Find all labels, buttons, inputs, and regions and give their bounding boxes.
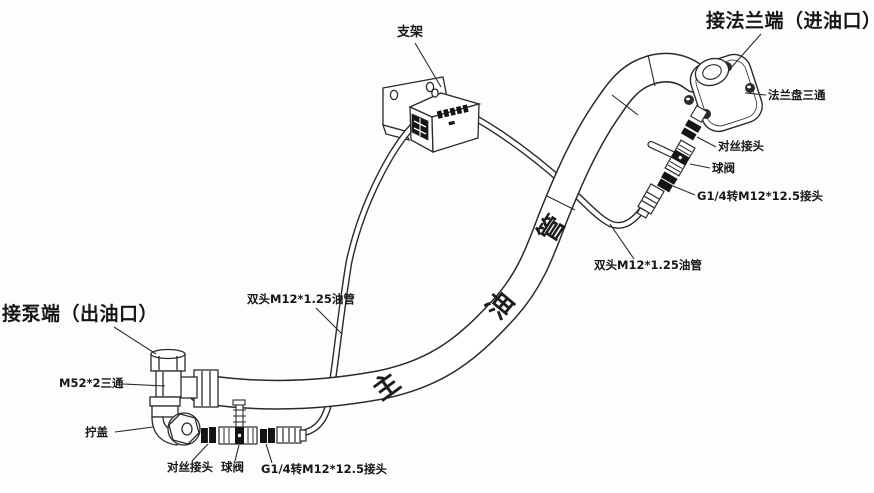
leader-nipple-bottom: [192, 444, 208, 461]
tee-body: [156, 371, 181, 397]
oil-pipe-right-label: 双头M12*1.25油管: [594, 259, 702, 272]
flange-tee-label: 法兰盘三通: [768, 89, 826, 102]
leader-ball-valve-top: [690, 164, 710, 168]
adapter-joint-bottom: [260, 428, 275, 443]
leader-oil-pipe-right: [610, 224, 634, 259]
box-top-nub: [432, 89, 438, 97]
ball-valve-bottom-label: 球阀: [221, 461, 244, 474]
ball-valve-top-label: 球阀: [712, 162, 735, 175]
adapter-top-label: G1/4转M12*12.5接头: [697, 190, 823, 203]
tee-label: M52*2三通: [59, 377, 123, 390]
leader-pump-end: [114, 327, 156, 354]
cap-label: 拧盖: [85, 426, 108, 439]
oil-pipe-assembly-drawing: 支架 接法兰端（进油口） 法兰盘三通 对丝接头 球阀 G1/4转M12*12.5…: [0, 0, 874, 493]
line-art: [0, 0, 874, 493]
ribbed-connector-top: [635, 184, 664, 219]
ribbed-connector-bottom: [277, 427, 306, 443]
leader-cap: [115, 427, 153, 432]
leader-nipple-top: [697, 137, 716, 147]
bracket-label: 支架: [397, 26, 423, 40]
leader-ball-valve-bottom: [235, 445, 239, 461]
nipple-top-label: 对丝接头: [718, 140, 764, 153]
leader-adapter-bottom: [266, 444, 272, 463]
adapter-bottom-label: G1/4转M12*12.5接头: [261, 463, 387, 476]
ball-valve-top: [647, 140, 695, 176]
oil-pipe-left-label: 双头M12*1.25油管: [247, 293, 355, 306]
nipple-joint-bottom: [201, 427, 216, 443]
pump-end-title: 接泵端（出油口）: [2, 304, 158, 325]
nipple-bottom-label: 对丝接头: [167, 461, 213, 474]
leader-adapter-top: [673, 186, 695, 195]
flange-end-title: 接法兰端（进油口）: [706, 11, 874, 32]
